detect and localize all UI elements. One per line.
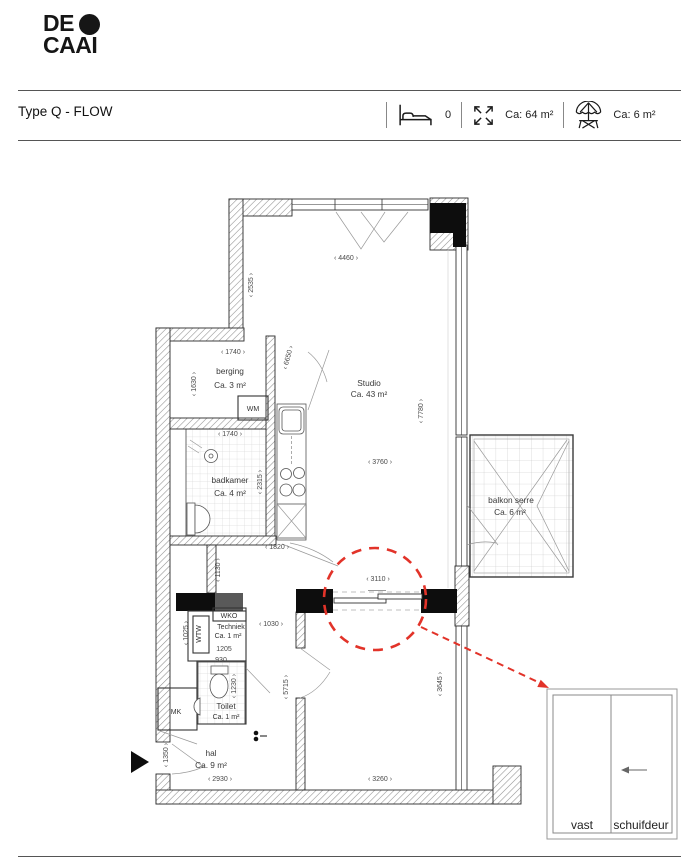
dim-1820: ‹ 1820 ›	[265, 544, 290, 551]
legend-fixed-label: vast	[571, 818, 594, 832]
dim-3645: ‹ 3645 ›	[437, 671, 444, 696]
logo-line2: CAAI	[43, 35, 100, 55]
dim-4460: ‹ 4460 ›	[334, 255, 359, 262]
dim-7780: ‹ 7780 ›	[418, 398, 425, 423]
dim-5715: ‹ 5715 ›	[283, 674, 290, 699]
label-mk: MK	[171, 709, 182, 716]
dim-3110: ‹ 3110 ›	[366, 576, 390, 583]
spec-separator	[386, 102, 387, 128]
room-label-berging: berging	[216, 366, 244, 376]
room-label-toilet: Toilet	[216, 701, 236, 711]
entrance-arrow	[131, 751, 149, 773]
room-label-studio: Studio	[357, 378, 381, 388]
door-legend: vast schuifdeur	[547, 689, 677, 839]
legend-sliding-label: schuifdeur	[613, 818, 668, 832]
room-area-techniek: Ca. 1 m²	[215, 633, 243, 640]
dim-1740-badkamer: ‹ 1740 ›	[218, 431, 243, 438]
spec-separator	[461, 102, 462, 128]
dim-1740-berging: ‹ 1740 ›	[221, 349, 246, 356]
bedroom-count: 0	[445, 109, 451, 121]
room-area-toilet: Ca. 1 m²	[213, 714, 241, 721]
spec-separator	[563, 102, 564, 128]
room-area-badkamer: Ca. 4 m²	[214, 488, 246, 498]
dim-1350: ‹ 1350 ›	[163, 742, 170, 767]
dim-1025: ‹ 1025 ›	[183, 620, 190, 645]
room-label-techniek: Techniek	[217, 624, 245, 631]
header-divider-bottom	[18, 140, 681, 141]
decaai-logo: DE CAAI	[43, 13, 100, 55]
plan-title: Type Q - FLOW	[18, 104, 113, 119]
dim-1130: ‹ 1130 ›	[215, 558, 222, 582]
room-label-badkamer: badkamer	[212, 475, 249, 485]
thermostat-icon	[254, 731, 267, 742]
outdoor-area-value: Ca: 6 m²	[613, 109, 655, 121]
label-wm: WM	[247, 406, 260, 413]
bed-icon	[397, 101, 435, 129]
windows	[292, 199, 467, 790]
floor-plan-drawing: berging Ca. 3 m² badkamer Ca. 4 m² Studi…	[0, 148, 699, 860]
room-area-hal: Ca. 9 m²	[195, 760, 227, 770]
room-area-studio: Ca. 43 m²	[351, 389, 388, 399]
living-area-value: Ca: 64 m²	[505, 109, 553, 121]
room-balkon-serre	[470, 435, 573, 577]
logo-line1: DE	[43, 13, 74, 33]
dim-1205: 1205	[216, 646, 232, 653]
dim-1630: ‹ 1630 ›	[191, 371, 198, 396]
dim-3760: ‹ 3760 ›	[368, 459, 393, 466]
page-bottom-divider	[18, 856, 681, 857]
expand-arrows-icon	[472, 104, 495, 127]
header-divider-top	[18, 90, 681, 91]
room-area-berging: Ca. 3 m²	[214, 380, 246, 390]
kitchen-block	[277, 404, 306, 540]
dim-2930: ‹ 2930 ›	[208, 776, 233, 783]
parasol-icon	[574, 101, 603, 129]
highlight-arrowhead	[537, 680, 549, 688]
floorplan-page: DE CAAI Type Q - FLOW 0 Ca: 6	[0, 0, 699, 860]
dim-1230: ‹ 1230 ›	[231, 673, 238, 698]
dim-6650: ‹ 6650 ›	[282, 344, 295, 370]
spec-strip: 0 Ca: 64 m² Ca: 6 m²	[386, 96, 656, 134]
dim-3260: ‹ 3260 ›	[368, 776, 393, 783]
label-wtw: WTW	[196, 625, 203, 643]
dim-2535: ‹ 2535 ›	[248, 272, 255, 297]
label-wko: WKO	[221, 613, 238, 620]
room-label-balkon: balkon serre	[488, 495, 534, 505]
room-label-hal: hal	[205, 748, 216, 758]
dim-1030: ‹ 1030 ›	[259, 621, 284, 628]
dim-2315: ‹ 2315 ›	[257, 469, 264, 494]
room-area-balkon: Ca. 6 m²	[494, 507, 526, 517]
dim-930: 930	[215, 657, 227, 664]
sliding-door	[333, 591, 422, 611]
